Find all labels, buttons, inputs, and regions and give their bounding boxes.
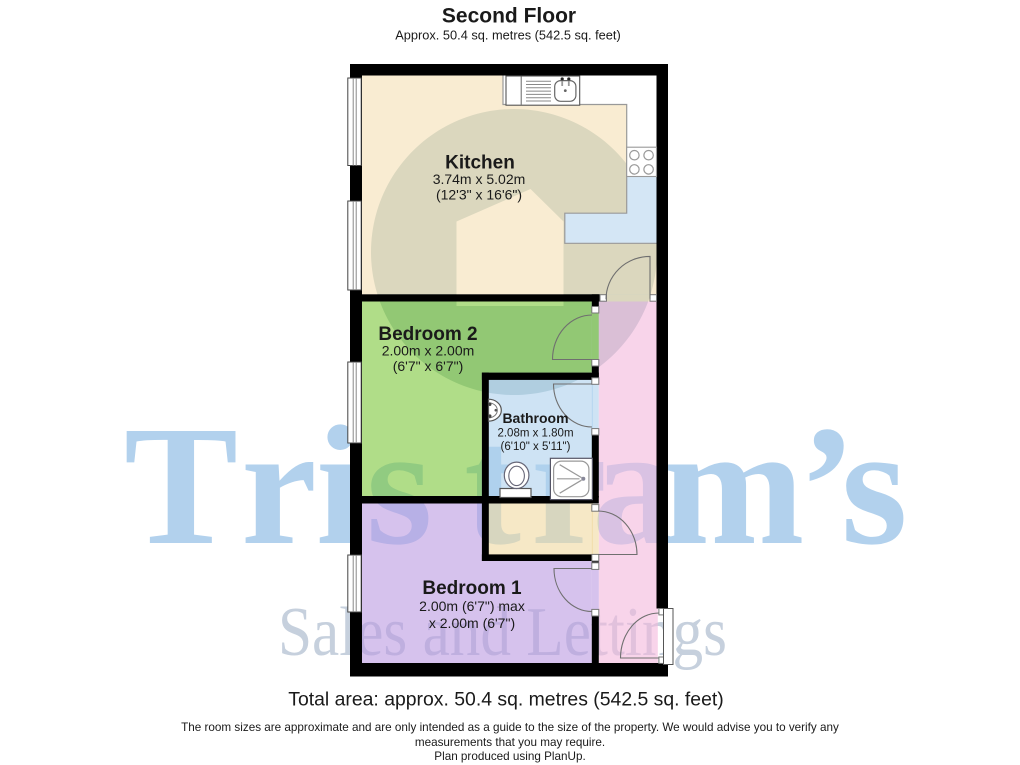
svg-text:measurements that you may requ: measurements that you may require. [415,736,605,749]
svg-text:Bedroom 1: Bedroom 1 [422,578,522,599]
svg-text:(12'3" x 16'6"): (12'3" x 16'6") [436,187,522,203]
svg-text:2.08m x 1.80m: 2.08m x 1.80m [497,428,573,440]
svg-text:2.00m x 2.00m: 2.00m x 2.00m [382,342,475,358]
svg-text:Second Floor: Second Floor [442,5,576,28]
svg-text:(6'10" x 5'11"): (6'10" x 5'11") [501,441,571,453]
svg-text:Approx. 50.4 sq. metres (542.5: Approx. 50.4 sq. metres (542.5 sq. feet) [395,28,620,43]
svg-text:x 2.00m (6'7"): x 2.00m (6'7") [429,615,515,631]
svg-text:2.00m (6'7") max: 2.00m (6'7") max [419,598,525,614]
svg-text:The room sizes are approximate: The room sizes are approximate and are o… [181,721,839,734]
svg-text:Total area: approx. 50.4 sq. m: Total area: approx. 50.4 sq. metres (542… [288,689,723,711]
svg-text:Plan produced using PlanUp.: Plan produced using PlanUp. [434,750,585,763]
svg-text:(6'7" x 6'7"): (6'7" x 6'7") [393,358,464,374]
svg-text:3.74m x 5.02m: 3.74m x 5.02m [433,171,526,187]
svg-text:Bathroom: Bathroom [502,410,568,426]
